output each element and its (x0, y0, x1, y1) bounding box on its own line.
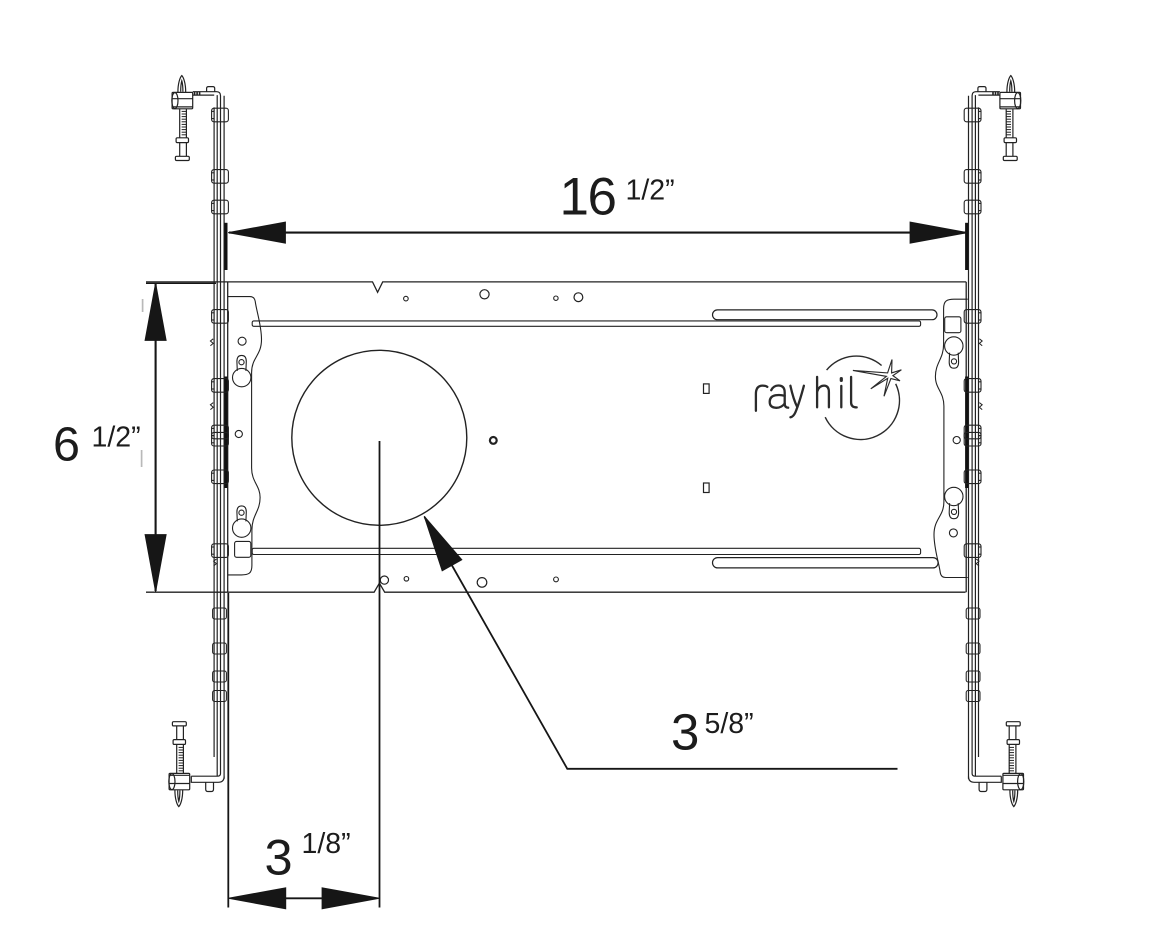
svg-text:3: 3 (265, 829, 293, 886)
svg-text:6: 6 (53, 418, 80, 472)
svg-text:1/2”: 1/2” (92, 422, 141, 454)
svg-text:1/2”: 1/2” (626, 175, 675, 207)
svg-text:3: 3 (671, 704, 699, 761)
svg-text:16: 16 (560, 168, 616, 227)
svg-text:1/8”: 1/8” (302, 828, 351, 860)
svg-text:5/8”: 5/8” (705, 708, 754, 740)
